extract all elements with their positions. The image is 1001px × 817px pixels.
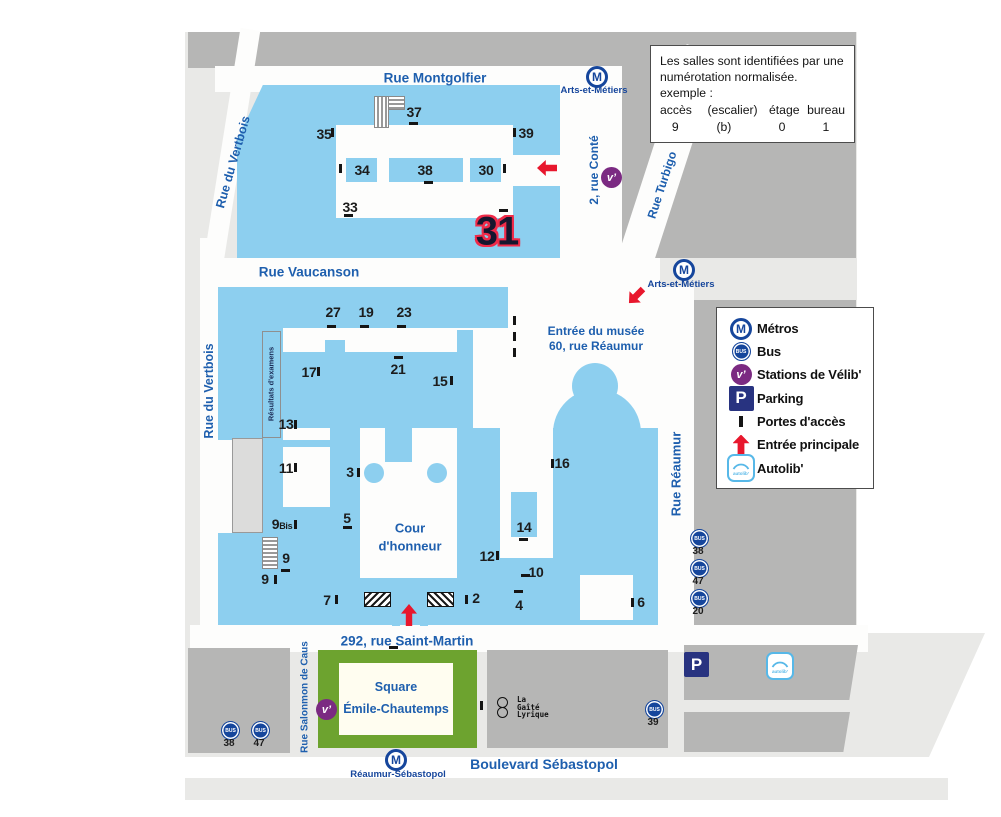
info-val-escalier: (b) bbox=[691, 119, 758, 135]
bus-glyph: BUS bbox=[255, 728, 266, 734]
velib-station-icon: v’ bbox=[601, 167, 622, 188]
access-number-17: 17 bbox=[302, 364, 317, 380]
bus-glyph: BUS bbox=[736, 349, 747, 355]
door-tick bbox=[317, 367, 320, 376]
door-tick bbox=[339, 164, 342, 173]
parking-letter: P bbox=[691, 655, 702, 675]
access-number-7: 7 bbox=[323, 592, 331, 608]
metro-icon: M bbox=[673, 259, 695, 281]
parking-icon: P bbox=[684, 652, 709, 677]
access-number-38: 38 bbox=[418, 162, 433, 178]
metro-letter: M bbox=[679, 263, 689, 277]
courtyard-6 bbox=[580, 575, 633, 620]
metro-letter: M bbox=[592, 70, 602, 84]
stairs-icon bbox=[262, 537, 278, 569]
access-number-21: 21 bbox=[391, 361, 406, 377]
hatched-gate bbox=[364, 592, 391, 607]
door-tick bbox=[496, 551, 499, 560]
access-number-4: 4 bbox=[515, 597, 523, 613]
door-tick bbox=[294, 420, 297, 429]
square-label-line1: Square bbox=[375, 680, 417, 694]
entrance-pillar bbox=[420, 604, 428, 626]
metro-icon bbox=[385, 749, 407, 771]
access-number-27: 27 bbox=[326, 304, 341, 320]
gaite-logo-ring bbox=[497, 707, 508, 718]
access-number-9bis-digit: 9 bbox=[272, 516, 280, 532]
metro-icon: M bbox=[730, 318, 752, 340]
street-label-conte: 2, rue Conté bbox=[587, 135, 601, 204]
building-strip-15 bbox=[457, 330, 473, 428]
street-label-montgolfier: Rue Montgolfier bbox=[384, 71, 487, 86]
door-tick bbox=[274, 575, 277, 584]
building-cour-north-stub bbox=[385, 428, 412, 462]
velib-glyph: v’ bbox=[322, 704, 331, 716]
door-tick bbox=[739, 416, 743, 427]
legend-label-entrance: Entrée principale bbox=[757, 437, 859, 452]
bus-stop-number: 38 bbox=[223, 738, 234, 749]
door-tick bbox=[397, 325, 406, 328]
info-line2: numérotation normalisée. bbox=[660, 69, 845, 85]
access-number-37: 37 bbox=[407, 104, 422, 120]
metro-station-label: Arts-et-Métiers bbox=[560, 85, 627, 96]
door-tick bbox=[513, 128, 516, 137]
parking-letter: P bbox=[735, 388, 746, 408]
bus-glyph: BUS bbox=[225, 728, 236, 734]
door-tick bbox=[335, 595, 338, 604]
autolib-text: autolib’ bbox=[772, 669, 788, 674]
bus-glyph: BUS bbox=[649, 707, 660, 713]
street-label-vaucanson: Rue Vaucanson bbox=[259, 265, 360, 280]
bus-glyph: BUS bbox=[694, 536, 705, 542]
door-tick bbox=[424, 181, 433, 184]
legend-item-doors: Portes d'accès bbox=[725, 410, 867, 433]
street-label-salomon-de-caus: Rue Salonmon de Caus bbox=[300, 641, 311, 753]
access-number-10: 10 bbox=[529, 564, 544, 580]
access-number-9: 9 bbox=[261, 571, 269, 587]
street-label-vertbois: Rue du Vertbois bbox=[202, 343, 216, 438]
access-number-11: 11 bbox=[279, 460, 293, 476]
access-number-5: 5 bbox=[343, 510, 351, 526]
courtyard-pavilion bbox=[364, 463, 384, 483]
access-number-35: 35 bbox=[317, 126, 332, 142]
info-val-etage: 0 bbox=[757, 119, 807, 135]
door-tick bbox=[480, 701, 483, 710]
access-number-15: 15 bbox=[433, 373, 448, 389]
access-number-12: 12 bbox=[480, 548, 495, 564]
autolib-car-glyph bbox=[771, 659, 789, 669]
entrance-pillar bbox=[392, 604, 400, 626]
street-label-reaumur: Rue Réaumur bbox=[669, 432, 684, 517]
stairs-icon bbox=[374, 96, 389, 128]
door-tick bbox=[503, 164, 506, 173]
bus-stop-number: 47 bbox=[253, 738, 264, 749]
access-number-9bis: 9Bis bbox=[272, 516, 293, 532]
door-tick bbox=[394, 356, 403, 359]
access-number-23: 23 bbox=[397, 304, 412, 320]
info-line3: exemple : bbox=[660, 85, 845, 101]
access-number-13: 13 bbox=[279, 416, 294, 432]
bus-stop-number: 39 bbox=[647, 717, 658, 728]
numbering-info-box: Les salles sont identifiées par une numé… bbox=[650, 45, 855, 143]
parking-icon: P bbox=[729, 386, 754, 411]
results-board-label: Résultats d'examens bbox=[267, 347, 276, 421]
autolib-icon: autolib’ bbox=[766, 652, 794, 680]
annex-building bbox=[232, 438, 263, 533]
door-tick bbox=[465, 595, 468, 604]
access-number-9bis-suffix: Bis bbox=[279, 521, 292, 531]
access-number-16: 16 bbox=[555, 455, 570, 471]
metro-letter: M bbox=[736, 322, 746, 336]
door-tick bbox=[343, 526, 352, 529]
velib-station-icon: v’ bbox=[731, 364, 752, 385]
legend-label-metro: Métros bbox=[757, 321, 798, 336]
courtyard-pavilion bbox=[427, 463, 447, 483]
building-central-notch bbox=[325, 340, 345, 354]
door-tick bbox=[357, 468, 360, 477]
museum-entrance-label-line1: Entrée du musée bbox=[548, 324, 645, 338]
door-tick bbox=[513, 332, 516, 341]
info-col-escalier: (escalier) bbox=[700, 102, 765, 118]
bus-glyph: BUS bbox=[694, 596, 705, 602]
square-inner-lawn bbox=[339, 663, 453, 735]
info-val-bureau: 1 bbox=[807, 119, 845, 135]
legend-item-entrance: Entrée principale bbox=[725, 433, 867, 456]
street-label-saint-martin: 292, rue Saint-Martin bbox=[341, 634, 474, 649]
access-number-6: 6 bbox=[637, 594, 645, 610]
legend-item-metro: M Métros bbox=[725, 317, 867, 340]
info-line1: Les salles sont identifiées par une bbox=[660, 53, 845, 69]
door-tick bbox=[327, 325, 336, 328]
entrance-arrow-icon bbox=[733, 435, 750, 455]
door-tick bbox=[281, 569, 290, 572]
access-number-30: 30 bbox=[479, 162, 494, 178]
legend-label-bus: Bus bbox=[757, 344, 781, 359]
velib-glyph: v’ bbox=[736, 369, 745, 381]
access-number-31: 31 bbox=[476, 210, 519, 255]
bus-glyph: BUS bbox=[694, 566, 705, 572]
metro-station-label: Réaumur-Sébastopol bbox=[350, 769, 446, 780]
gaite-label-line3: Lyrique bbox=[517, 711, 549, 719]
autolib-car-glyph bbox=[732, 461, 750, 471]
door-tick bbox=[409, 122, 418, 125]
access-number-9: 9 bbox=[282, 550, 290, 566]
bus-stop-icon: BUS bbox=[732, 342, 751, 361]
door-tick bbox=[519, 538, 528, 541]
cnam-campus-map: Résultats d'examens 37 35 39 34 38 3 bbox=[0, 0, 1001, 817]
autolib-text: autolib’ bbox=[733, 471, 749, 476]
access-number-34: 34 bbox=[355, 162, 370, 178]
access-number-33: 33 bbox=[343, 199, 358, 215]
info-val-acces: 9 bbox=[660, 119, 691, 135]
door-tick bbox=[631, 598, 634, 607]
legend-item-autolib: autolib’ Autolib' bbox=[725, 456, 867, 480]
legend-label-doors: Portes d'accès bbox=[757, 414, 845, 429]
bus-stop-number: 20 bbox=[692, 606, 703, 617]
legend-item-velib: v’ Stations de Vélib' bbox=[725, 363, 867, 386]
door-tick bbox=[514, 590, 523, 593]
info-col-bureau: bureau bbox=[803, 102, 845, 118]
door-tick bbox=[513, 316, 516, 325]
legend-item-parking: P Parking bbox=[725, 386, 867, 410]
access-number-3: 3 bbox=[346, 464, 354, 480]
door-tick bbox=[360, 325, 369, 328]
door-tick bbox=[294, 520, 297, 529]
metro-station-label: Arts-et-Métiers bbox=[647, 279, 714, 290]
street-label-sebastopol: Boulevard Sébastopol bbox=[470, 756, 618, 772]
velib-glyph: v’ bbox=[607, 172, 616, 184]
info-col-acces: accès bbox=[660, 102, 700, 118]
info-col-etage: étage bbox=[765, 102, 803, 118]
square-label-line2: Émile-Chautemps bbox=[343, 702, 449, 716]
access-number-39: 39 bbox=[519, 125, 534, 141]
courtyard-west-lower bbox=[283, 447, 330, 507]
gaite-lyrique-logo bbox=[497, 697, 511, 721]
bus-stop-number: 38 bbox=[692, 546, 703, 557]
cour-honneur-label-line2: d'honneur bbox=[378, 539, 441, 554]
city-block-southwest bbox=[188, 648, 290, 753]
access-number-14: 14 bbox=[517, 519, 532, 535]
legend-item-bus: BUS Bus bbox=[725, 340, 867, 363]
access-number-2: 2 bbox=[472, 590, 480, 606]
door-tick bbox=[294, 463, 297, 472]
city-block-southeast bbox=[684, 712, 850, 752]
map-legend: M Métros BUS Bus v’ Stations de Vélib' P… bbox=[716, 307, 874, 489]
building-southeast-wing bbox=[500, 558, 553, 625]
legend-label-parking: Parking bbox=[757, 391, 803, 406]
museum-entrance-label-line2: 60, rue Réaumur bbox=[549, 339, 643, 353]
bus-stop-number: 47 bbox=[692, 576, 703, 587]
city-block-gaite-lyrique bbox=[487, 650, 668, 748]
access-number-19: 19 bbox=[359, 304, 374, 320]
door-tick bbox=[513, 348, 516, 357]
velib-station-icon: v’ bbox=[316, 699, 337, 720]
map-background-bottom-edge bbox=[185, 778, 948, 800]
door-tick bbox=[450, 376, 453, 385]
cour-honneur-label-line1: Cour bbox=[395, 521, 425, 536]
autolib-icon: autolib’ bbox=[727, 454, 755, 482]
hatched-gate bbox=[427, 592, 454, 607]
legend-label-velib: Stations de Vélib' bbox=[757, 367, 861, 382]
legend-label-autolib: Autolib' bbox=[757, 461, 803, 476]
gaite-lyrique-label: La Gaîté Lyrique bbox=[517, 696, 549, 719]
